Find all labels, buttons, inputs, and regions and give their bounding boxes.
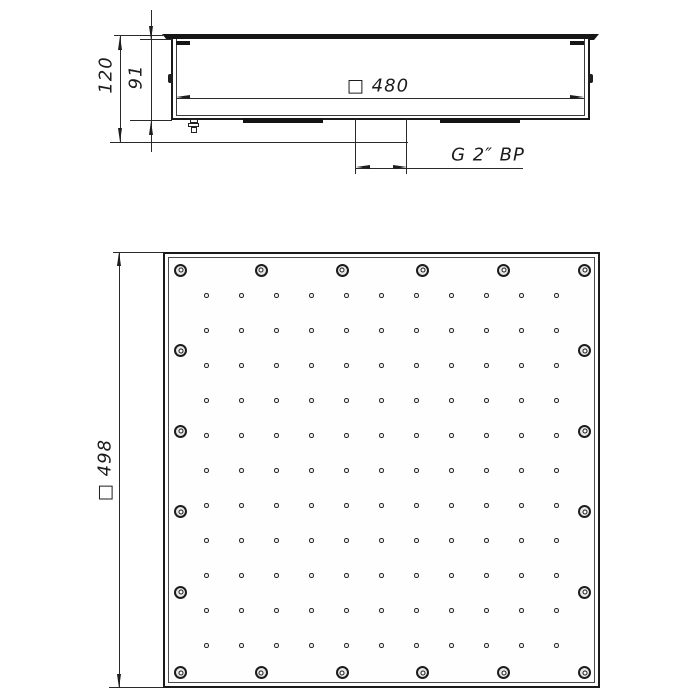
screw-hole bbox=[174, 344, 187, 357]
dim-arrow bbox=[393, 165, 407, 169]
nozzle-dot bbox=[239, 503, 244, 508]
nozzle-dot bbox=[239, 468, 244, 473]
nozzle-dot bbox=[309, 363, 314, 368]
technical-drawing-sheet: 120 91 □ 480 G 2″ BP □ 498 bbox=[0, 0, 700, 700]
nozzle-dot bbox=[519, 643, 524, 648]
nozzle-dot bbox=[554, 538, 559, 543]
nozzle-dot bbox=[344, 293, 349, 298]
thread-size-label: G 2″ BP bbox=[451, 145, 525, 166]
side-clip-right bbox=[588, 74, 593, 83]
nozzle-dot bbox=[239, 573, 244, 578]
nozzle-dot bbox=[519, 503, 524, 508]
nozzle-plate-strip-right bbox=[440, 118, 520, 123]
nozzle-dot bbox=[484, 468, 489, 473]
dim-arrow bbox=[149, 121, 153, 135]
nozzle-dot bbox=[309, 328, 314, 333]
screw-hole bbox=[578, 586, 591, 599]
dimension-line-thread bbox=[356, 168, 523, 169]
nozzle-dot bbox=[344, 608, 349, 613]
nozzle-dot bbox=[309, 608, 314, 613]
nozzle-dot bbox=[484, 503, 489, 508]
nozzle-dot bbox=[309, 293, 314, 298]
nozzle-dot bbox=[274, 643, 279, 648]
nozzle-dot bbox=[449, 293, 454, 298]
dim-arrow bbox=[117, 252, 121, 266]
nozzle-dot bbox=[554, 503, 559, 508]
nozzle-dot bbox=[519, 328, 524, 333]
corner-weld-right bbox=[570, 41, 584, 45]
nozzle-dot bbox=[274, 538, 279, 543]
nozzle-dot bbox=[554, 608, 559, 613]
nozzle-dot bbox=[484, 398, 489, 403]
nozzle-dot bbox=[379, 468, 384, 473]
nozzle-plate-strip-left bbox=[243, 118, 323, 123]
nozzle-dot bbox=[414, 503, 419, 508]
nozzle-dot bbox=[554, 643, 559, 648]
extension-line-flange-bottom bbox=[140, 39, 172, 40]
nozzle-dot bbox=[379, 398, 384, 403]
screw-hole bbox=[174, 666, 187, 679]
nozzle-dot bbox=[414, 538, 419, 543]
nozzle-dot bbox=[484, 573, 489, 578]
nozzle-dot bbox=[414, 433, 419, 438]
screw-hole bbox=[578, 666, 591, 679]
nozzle-dot bbox=[274, 363, 279, 368]
nozzle-dot bbox=[519, 538, 524, 543]
dim-arrow bbox=[570, 95, 584, 99]
nozzle-dot bbox=[239, 538, 244, 543]
nozzle-dot bbox=[239, 398, 244, 403]
nozzle-dot bbox=[379, 503, 384, 508]
nozzle-dot bbox=[204, 573, 209, 578]
nozzle-dot bbox=[239, 328, 244, 333]
nozzle-dot bbox=[519, 608, 524, 613]
dimension-line-120 bbox=[120, 36, 121, 142]
nozzle-dot bbox=[414, 363, 419, 368]
nozzle-dot bbox=[519, 468, 524, 473]
screw-hole bbox=[578, 425, 591, 438]
nozzle-dot bbox=[449, 468, 454, 473]
nozzle-dot bbox=[449, 433, 454, 438]
nozzle-dot bbox=[309, 398, 314, 403]
nozzle-dot bbox=[274, 608, 279, 613]
nozzle-dot bbox=[204, 503, 209, 508]
nozzle-dot bbox=[204, 293, 209, 298]
nozzle-dot bbox=[484, 538, 489, 543]
screw-hole bbox=[174, 586, 187, 599]
nozzle-dot bbox=[414, 328, 419, 333]
nozzle-dot bbox=[309, 538, 314, 543]
nozzle-dot bbox=[379, 328, 384, 333]
inlet-connector-bottom-line bbox=[110, 142, 408, 143]
dim-arrow bbox=[118, 36, 122, 50]
nozzle-dot bbox=[344, 363, 349, 368]
nozzle-dot bbox=[274, 293, 279, 298]
nozzle-dot bbox=[379, 363, 384, 368]
nozzle-dot bbox=[554, 433, 559, 438]
nozzle-dot bbox=[274, 328, 279, 333]
nozzle-dot bbox=[239, 433, 244, 438]
nozzle-dot bbox=[519, 433, 524, 438]
nozzle-dot bbox=[204, 328, 209, 333]
nozzle-dot bbox=[344, 503, 349, 508]
nozzle-dot bbox=[379, 643, 384, 648]
nozzle-dot bbox=[414, 573, 419, 578]
nozzle-dot bbox=[309, 573, 314, 578]
screw-hole bbox=[174, 505, 187, 518]
nozzle-dot bbox=[204, 538, 209, 543]
nozzle-dot bbox=[484, 363, 489, 368]
nozzle-dot bbox=[484, 608, 489, 613]
nozzle-dot bbox=[519, 293, 524, 298]
nozzle-dot bbox=[274, 468, 279, 473]
nozzle-dot bbox=[449, 328, 454, 333]
nozzle-dot bbox=[204, 608, 209, 613]
nozzle-dot bbox=[204, 643, 209, 648]
screw-hole bbox=[578, 505, 591, 518]
dim-arrow bbox=[356, 165, 370, 169]
dim-arrow bbox=[176, 95, 190, 99]
nozzle-dot bbox=[274, 503, 279, 508]
nozzle-dot bbox=[204, 398, 209, 403]
screw-hole bbox=[336, 666, 349, 679]
nozzle-dot bbox=[484, 433, 489, 438]
nozzle-dot bbox=[449, 643, 454, 648]
side-clip-left bbox=[168, 74, 173, 83]
corner-weld-left bbox=[176, 41, 190, 45]
dim-arrow bbox=[118, 128, 122, 142]
screw-hole bbox=[174, 264, 187, 277]
nozzle-dot bbox=[309, 433, 314, 438]
nozzle-dot bbox=[554, 363, 559, 368]
nozzle-dot bbox=[379, 293, 384, 298]
nozzle-dot bbox=[379, 573, 384, 578]
nozzle-dot bbox=[204, 433, 209, 438]
nozzle-dot bbox=[239, 293, 244, 298]
screw-hole bbox=[255, 666, 268, 679]
nozzle-dot bbox=[309, 643, 314, 648]
dim-face-size-label: □ 498 bbox=[95, 439, 116, 501]
nozzle-dot bbox=[239, 608, 244, 613]
screw-hole bbox=[578, 264, 591, 277]
screw-hole bbox=[255, 264, 268, 277]
nozzle-dot bbox=[449, 608, 454, 613]
nozzle-dot bbox=[554, 293, 559, 298]
nozzle-dot bbox=[309, 468, 314, 473]
dim-arrow bbox=[117, 674, 121, 688]
nozzle-dot bbox=[554, 398, 559, 403]
screw-hole bbox=[336, 264, 349, 277]
nozzle-dot bbox=[379, 608, 384, 613]
nozzle-dot bbox=[309, 503, 314, 508]
nozzle-dot bbox=[519, 573, 524, 578]
nozzle-dot bbox=[274, 573, 279, 578]
nozzle-dot bbox=[379, 538, 384, 543]
nozzle-dot bbox=[414, 398, 419, 403]
dim-body-height-label: 91 bbox=[126, 65, 147, 90]
nozzle-dot bbox=[344, 328, 349, 333]
nozzle-dot bbox=[449, 503, 454, 508]
nozzle-dot bbox=[204, 468, 209, 473]
dim-total-height-label: 120 bbox=[96, 56, 117, 93]
nozzle-dot bbox=[344, 573, 349, 578]
screw-hole bbox=[174, 425, 187, 438]
nozzle-dot bbox=[274, 398, 279, 403]
nozzle-dot bbox=[449, 538, 454, 543]
nozzle-dot bbox=[414, 608, 419, 613]
dimension-line-498 bbox=[119, 252, 120, 688]
nozzle-dot bbox=[554, 573, 559, 578]
nozzle-dot bbox=[344, 398, 349, 403]
nozzle-dot bbox=[344, 538, 349, 543]
nozzle-dot bbox=[239, 363, 244, 368]
nozzle-dot bbox=[344, 468, 349, 473]
nozzle-dot bbox=[414, 468, 419, 473]
nozzle-dot bbox=[449, 363, 454, 368]
nozzle-dot bbox=[379, 433, 384, 438]
dim-face-width-label: □ 480 bbox=[347, 76, 409, 97]
nozzle-dot bbox=[484, 643, 489, 648]
nozzle-dot bbox=[414, 643, 419, 648]
nozzle-dot bbox=[344, 643, 349, 648]
nozzle-dot bbox=[449, 398, 454, 403]
bleed-valve-stem bbox=[191, 127, 197, 133]
screw-hole bbox=[497, 264, 510, 277]
nozzle-dot bbox=[519, 398, 524, 403]
screw-hole bbox=[416, 264, 429, 277]
nozzle-dot bbox=[239, 643, 244, 648]
nozzle-dot bbox=[519, 363, 524, 368]
nozzle-dot bbox=[484, 293, 489, 298]
nozzle-dot bbox=[204, 363, 209, 368]
nozzle-dot bbox=[344, 433, 349, 438]
nozzle-dot bbox=[554, 468, 559, 473]
nozzle-dot bbox=[274, 433, 279, 438]
dim-arrow bbox=[149, 26, 153, 40]
nozzle-dot bbox=[554, 328, 559, 333]
dimension-line-480 bbox=[176, 98, 584, 99]
screw-hole bbox=[578, 344, 591, 357]
nozzle-dot bbox=[449, 573, 454, 578]
nozzle-dot bbox=[484, 328, 489, 333]
nozzle-dot bbox=[414, 293, 419, 298]
